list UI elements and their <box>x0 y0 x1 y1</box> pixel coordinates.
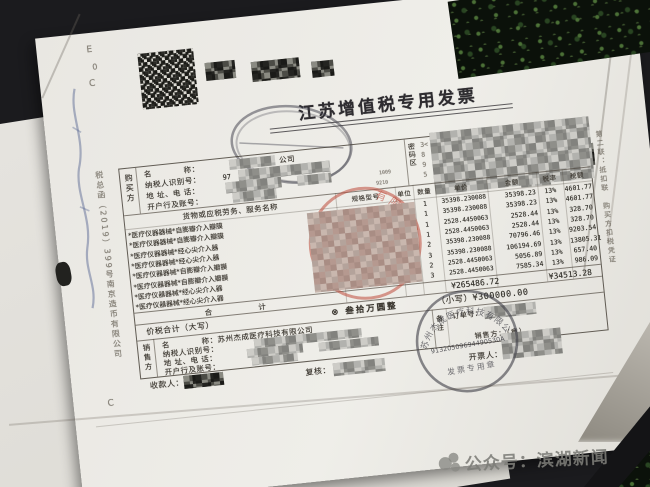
censored-reviewer <box>333 358 386 376</box>
corner-mark-bottom: C <box>107 398 115 409</box>
svg-text:91320509694490530A: 91320509694490530A <box>430 335 506 356</box>
censored-payee <box>183 372 224 389</box>
censored-block <box>205 60 237 81</box>
censored-block <box>311 60 335 78</box>
invoice-photo: E 0 C C 税总函（2019）399号南京造币有限公司 江苏增值税专用发票 … <box>0 0 650 487</box>
payee-label: 收款人： <box>150 378 185 391</box>
svg-text:发票专用章: 发票专用章 <box>446 358 497 377</box>
censored-block <box>251 57 301 82</box>
corner-mark-c: C <box>89 79 97 90</box>
corner-mark-zero: 0 <box>92 62 99 73</box>
corner-mark-top: E <box>86 45 93 56</box>
faint-number-1: 1009 <box>379 169 392 176</box>
reviewer-label: 复核： <box>305 366 331 379</box>
buyer-taxid-visible: 97 <box>222 173 231 182</box>
censored-stamp-area <box>307 202 423 293</box>
buyer-section-label: 购买方 <box>123 173 137 214</box>
qr-code <box>137 48 199 110</box>
seller-section-label: 销售方 <box>141 343 154 378</box>
